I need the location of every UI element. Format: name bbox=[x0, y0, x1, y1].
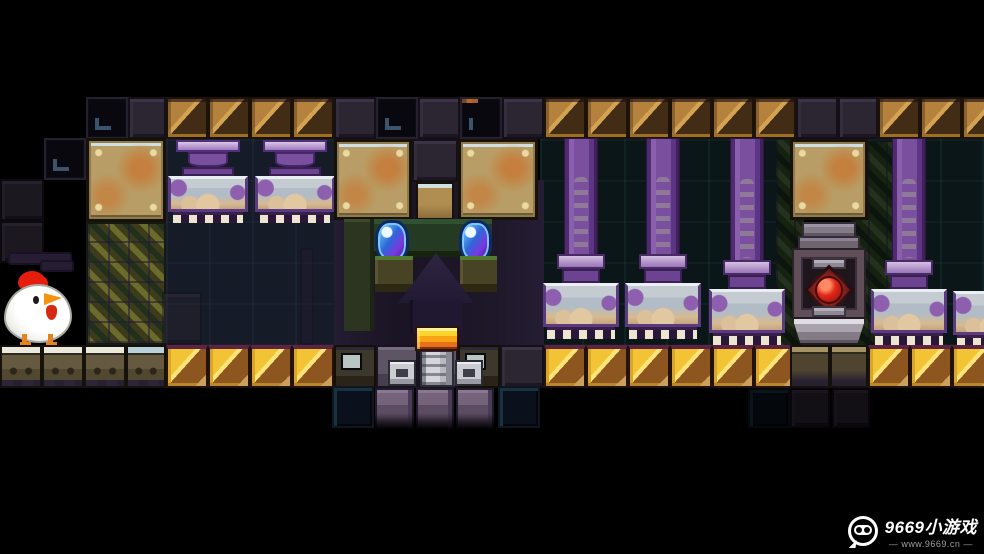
watermark-url: — www.9669.cn — bbox=[885, 539, 977, 549]
hazard-block bbox=[208, 345, 250, 388]
face-ledge bbox=[375, 256, 413, 292]
hazard-block bbox=[712, 97, 754, 139]
floor-ledge bbox=[42, 345, 84, 388]
pillar-shaft bbox=[646, 138, 680, 258]
hazard-block bbox=[250, 97, 292, 139]
ceiling-block bbox=[460, 97, 502, 139]
chicken-eye bbox=[33, 296, 39, 304]
speech-bubble-tail-icon bbox=[849, 540, 857, 548]
floor-ledge bbox=[0, 345, 42, 388]
pillar-teeth bbox=[875, 333, 943, 345]
metal-plate bbox=[790, 139, 868, 220]
frame-block bbox=[498, 386, 540, 428]
machine-block bbox=[334, 345, 376, 388]
pillar-cap bbox=[263, 140, 327, 152]
hazard-block bbox=[292, 97, 334, 139]
stone-block bbox=[456, 388, 494, 430]
wall-block bbox=[0, 179, 44, 221]
pillar-capital bbox=[255, 176, 335, 212]
ceiling-block bbox=[86, 97, 128, 139]
hazard-block bbox=[586, 345, 628, 388]
machine-part bbox=[388, 360, 416, 386]
pillar-capital bbox=[625, 283, 701, 327]
ceiling-block bbox=[376, 97, 418, 139]
red-orb bbox=[815, 276, 843, 304]
hazard-block bbox=[586, 97, 628, 139]
pillar-teeth bbox=[713, 333, 781, 345]
grate-wall bbox=[86, 222, 166, 345]
floor-ledge bbox=[126, 345, 166, 388]
ceiling-block bbox=[502, 97, 544, 139]
pillar-shaft bbox=[892, 138, 926, 264]
chicken-leg bbox=[48, 334, 53, 345]
stone-block bbox=[416, 388, 454, 430]
stone-block bbox=[375, 388, 414, 430]
chicken-body bbox=[4, 284, 72, 343]
pillar-teeth bbox=[260, 212, 330, 223]
totem-base bbox=[792, 317, 866, 345]
pillar-teeth bbox=[547, 327, 615, 339]
pillar-capital bbox=[168, 176, 248, 212]
ceiling-block bbox=[796, 97, 838, 139]
hazard-block bbox=[868, 345, 910, 388]
machine-piston bbox=[420, 350, 454, 387]
pillar-neck bbox=[728, 275, 766, 289]
metal-plate bbox=[86, 138, 166, 222]
hazard-block bbox=[250, 345, 292, 388]
gold-crown bbox=[415, 326, 459, 351]
floor-ledge bbox=[830, 345, 868, 388]
pillar-neck bbox=[269, 167, 321, 176]
wall-block bbox=[832, 388, 870, 428]
pillar-bulb bbox=[188, 152, 228, 167]
ceiling-block bbox=[128, 97, 166, 139]
pillar-capital bbox=[953, 291, 984, 335]
pillar-teeth bbox=[957, 335, 984, 345]
wall-block bbox=[500, 345, 544, 388]
floor-ledge bbox=[790, 345, 830, 388]
watermark: 9669小游戏 — www.9669.cn — bbox=[848, 513, 977, 549]
hazard-block bbox=[208, 97, 250, 139]
hazard-block bbox=[544, 345, 586, 388]
hazard-block bbox=[166, 97, 208, 139]
wall-block bbox=[412, 139, 458, 182]
pillar-neck bbox=[182, 167, 234, 176]
ceiling-block bbox=[418, 97, 460, 139]
pillar-capital bbox=[871, 289, 947, 333]
metal-plate bbox=[458, 139, 538, 220]
pipe bbox=[300, 248, 314, 345]
robot-eyes-icon bbox=[854, 525, 872, 535]
hazard-block bbox=[878, 97, 920, 139]
pillar-shaft bbox=[564, 138, 598, 258]
hazard-block bbox=[920, 97, 962, 139]
face-column bbox=[344, 219, 374, 331]
pillar-neck bbox=[890, 275, 928, 289]
watermark-brand: 9669小游戏 bbox=[885, 513, 977, 538]
frame-block bbox=[332, 386, 374, 428]
pillar-collar bbox=[639, 254, 687, 269]
pillar-collar bbox=[723, 260, 771, 275]
rubble-block bbox=[162, 292, 202, 345]
hazard-block bbox=[712, 345, 754, 388]
hazard-block bbox=[910, 345, 952, 388]
pillar-collar bbox=[885, 260, 933, 275]
pillar-capital bbox=[709, 289, 785, 333]
hazard-block bbox=[670, 97, 712, 139]
ceiling-block bbox=[334, 97, 376, 139]
pipe bbox=[40, 260, 74, 272]
hazard-block bbox=[670, 345, 712, 388]
hazard-block bbox=[754, 97, 796, 139]
metal-plate bbox=[416, 182, 454, 220]
hazard-block bbox=[292, 345, 334, 388]
pillar-teeth bbox=[173, 212, 243, 223]
floor-ledge bbox=[84, 345, 126, 388]
pillar-collar bbox=[557, 254, 605, 269]
pillar-shaft bbox=[730, 138, 764, 264]
pillar-bulb bbox=[275, 152, 315, 167]
totem-slot bbox=[812, 306, 846, 317]
hazard-block bbox=[628, 97, 670, 139]
pillar-capital bbox=[543, 283, 619, 327]
ceiling-block bbox=[838, 97, 878, 139]
watermark-text: 9669小游戏 — www.9669.cn — bbox=[885, 513, 977, 549]
pillar-neck bbox=[644, 269, 682, 283]
hazard-block bbox=[544, 97, 586, 139]
pillar-teeth bbox=[629, 327, 697, 339]
pillar-neck bbox=[562, 269, 600, 283]
pillar-cap bbox=[176, 140, 240, 152]
hazard-block bbox=[962, 97, 984, 139]
metal-plate bbox=[334, 139, 412, 220]
wall-block bbox=[790, 388, 830, 428]
frame-block bbox=[748, 388, 790, 428]
wall-block bbox=[44, 138, 86, 180]
chicken-leg bbox=[22, 334, 27, 345]
face-ledge bbox=[460, 256, 497, 292]
watermark-logo-icon bbox=[848, 516, 878, 546]
hazard-block bbox=[628, 345, 670, 388]
machine-part bbox=[455, 360, 483, 386]
game-viewport[interactable]: 9669小游戏 — www.9669.cn — bbox=[0, 0, 984, 554]
hazard-block bbox=[166, 345, 208, 388]
hazard-block bbox=[952, 345, 984, 388]
